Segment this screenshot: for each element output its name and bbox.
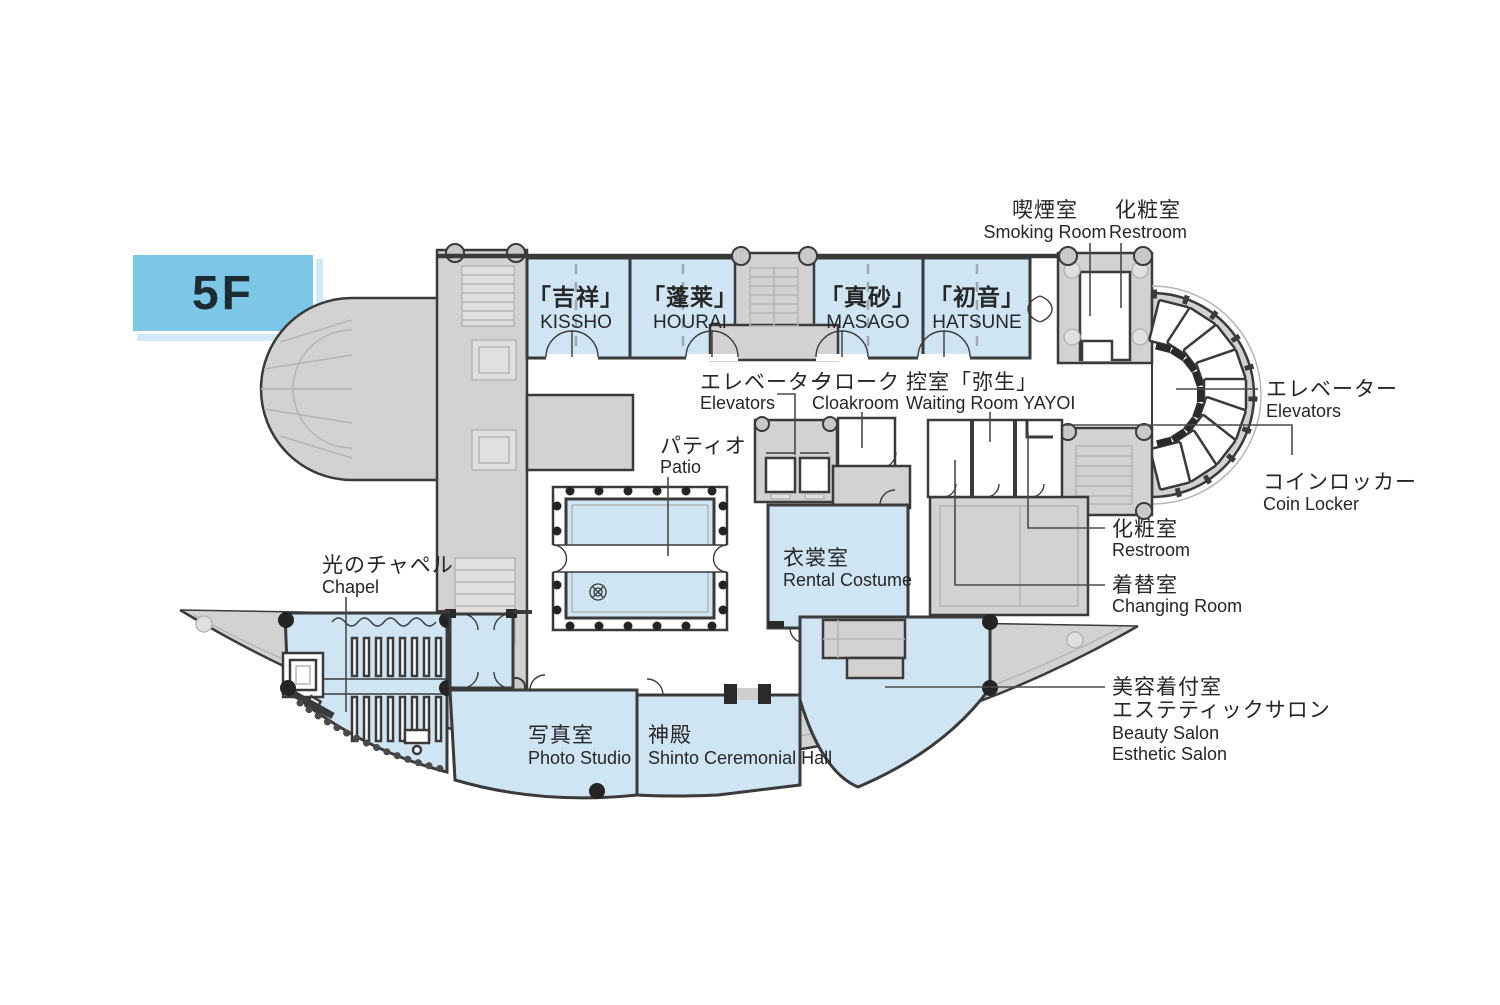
- patio-court: [551, 487, 729, 631]
- label-restroom-top-jp: 化粧室: [1115, 199, 1181, 222]
- center-elevators-block: [755, 417, 837, 502]
- shinto-gate: [735, 688, 760, 700]
- label-shinto-en: Shinto Ceremonial Hall: [648, 748, 832, 768]
- label-restroom-right-en: Restroom: [1112, 540, 1190, 560]
- cloakroom-room: [838, 418, 896, 468]
- elevator-rotunda: [1147, 286, 1261, 504]
- label-changing-en: Changing Room: [1112, 596, 1242, 616]
- label-coin-locker-en: Coin Locker: [1263, 494, 1359, 514]
- label-cloakroom-jp: クローク: [812, 371, 900, 394]
- waiting-rooms-yayoi: [928, 420, 1062, 497]
- chapel-vestibule: [445, 609, 517, 688]
- label-photo-jp: 写真室: [528, 724, 594, 747]
- label-hatsune-en: HATSUNE: [932, 312, 1021, 333]
- chapel-room: [278, 612, 462, 772]
- label-shinto-jp: 神殿: [648, 724, 692, 747]
- label-restroom-right-jp: 化粧室: [1112, 518, 1178, 541]
- label-coin-locker-jp: コインロッカー: [1263, 471, 1417, 494]
- label-cloakroom-en: Cloakroom: [812, 393, 899, 413]
- label-rental-en: Rental Costume: [783, 570, 912, 590]
- label-salon-jp2: エステティックサロン: [1112, 699, 1331, 722]
- service-strip: [833, 466, 910, 508]
- label-chapel-jp: 光のチャペル: [322, 554, 454, 577]
- label-waiting-en: Waiting Room YAYOI: [906, 393, 1075, 413]
- label-rental-jp: 衣裳室: [783, 547, 849, 570]
- label-salon-jp1: 美容着付室: [1112, 676, 1222, 699]
- label-kissho-jp: 「吉祥」: [528, 284, 624, 310]
- label-waiting-jp: 控室「弥生」: [906, 371, 1038, 394]
- label-salon-en2: Esthetic Salon: [1112, 744, 1227, 764]
- label-hatsune-jp: 「初音」: [929, 284, 1025, 310]
- label-patio-en: Patio: [660, 457, 701, 477]
- label-kissho-en: KISSHO: [540, 312, 612, 333]
- floorplan-page: 5F: [0, 0, 1500, 1005]
- label-smoking-en: Smoking Room: [983, 222, 1106, 242]
- label-elevators-center-en: Elevators: [700, 393, 775, 413]
- label-hourai-jp: 「蓬莱」: [642, 284, 738, 310]
- label-masago-en: MASAGO: [826, 312, 909, 333]
- label-salon-en1: Beauty Salon: [1112, 723, 1219, 743]
- changing-room-block: [930, 497, 1088, 615]
- label-elevators-right-jp: エレベーター: [1266, 378, 1398, 401]
- label-elevators-right-en: Elevators: [1266, 401, 1341, 421]
- label-changing-jp: 着替室: [1112, 574, 1178, 597]
- corridor-connector-block: [527, 395, 633, 470]
- label-patio-jp: パティオ: [660, 435, 747, 458]
- label-restroom-top-en: Restroom: [1109, 222, 1187, 242]
- label-masago-jp: 「真砂」: [820, 284, 916, 310]
- label-photo-en: Photo Studio: [528, 748, 631, 768]
- door-arc: [1040, 296, 1052, 322]
- label-chapel-en: Chapel: [322, 577, 379, 597]
- floorplan-svg: 「吉祥」 KISSHO 「蓬莱」 HOURAI 「真砂」 MASAGO 「初音」…: [0, 0, 1500, 1005]
- label-smoking-jp: 喫煙室: [1012, 199, 1078, 222]
- label-hourai-en: HOURAI: [653, 312, 727, 333]
